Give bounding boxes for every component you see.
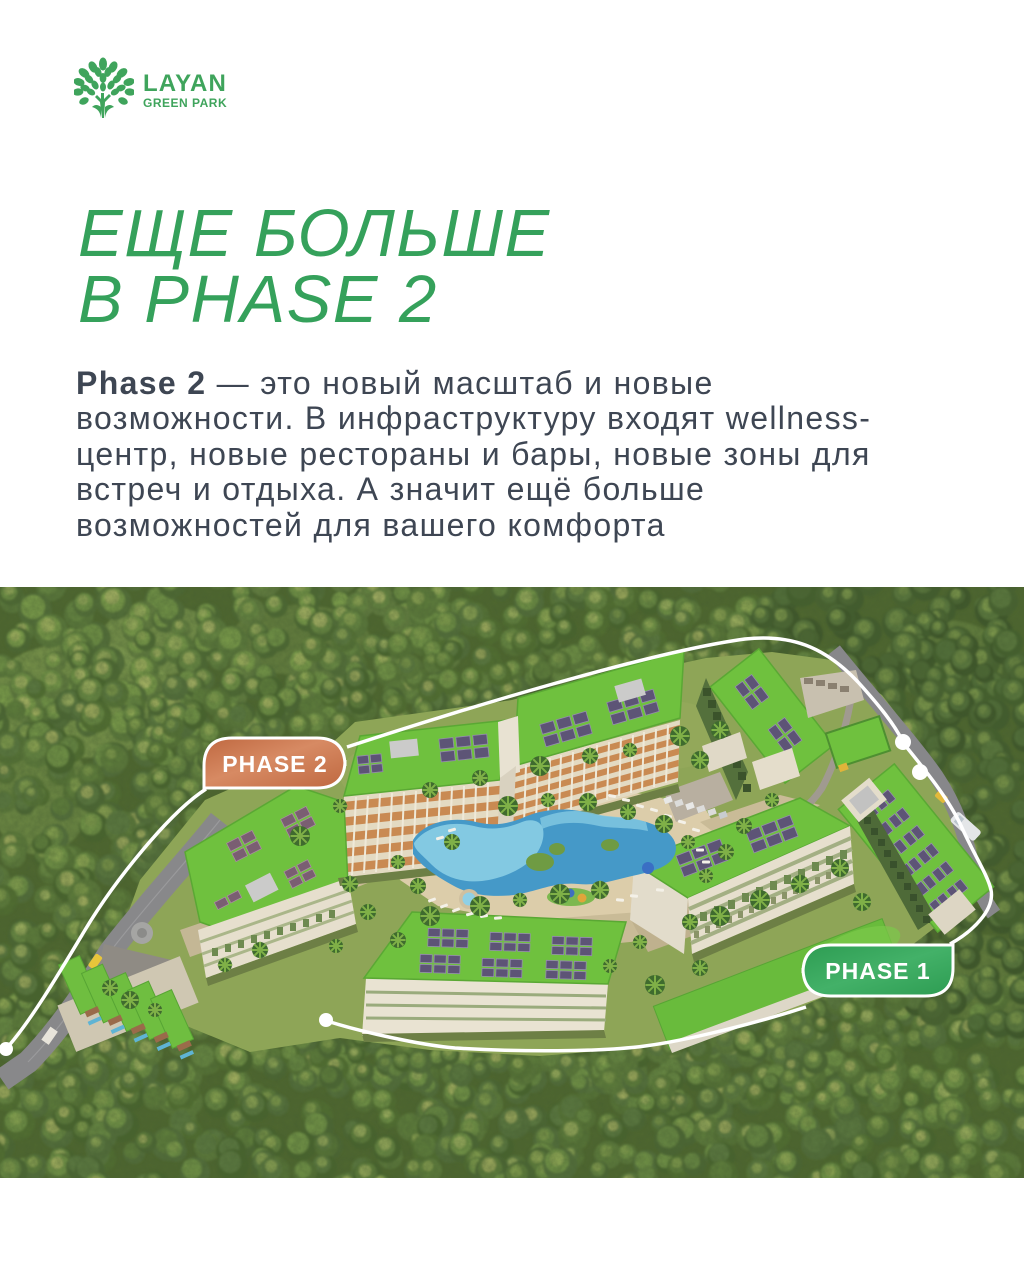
svg-text:PHASE 1: PHASE 1	[825, 958, 930, 984]
svg-text:PHASE 2: PHASE 2	[222, 751, 327, 777]
